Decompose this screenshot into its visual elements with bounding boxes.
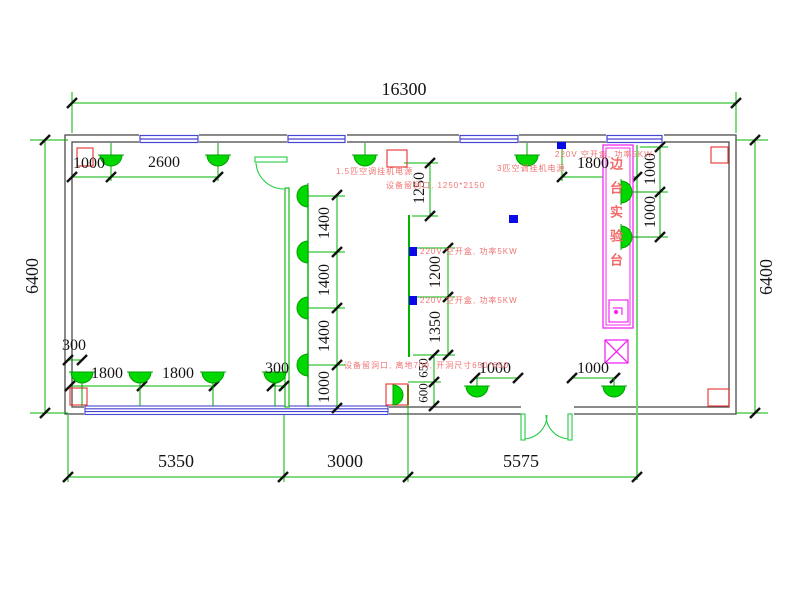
dim-label: 1000 bbox=[73, 156, 105, 172]
lamp-icon bbox=[297, 239, 308, 265]
floorplan-drawing: 16300 6400 6400 1000 2600 1800 1000 1000… bbox=[0, 0, 800, 600]
interior-door-icon bbox=[255, 157, 287, 189]
dim-label: 1400 bbox=[317, 207, 333, 239]
lamp-icon bbox=[127, 372, 153, 406]
lamp-icon bbox=[393, 385, 403, 405]
dim-label: 3000 bbox=[327, 452, 363, 470]
curtain-wall-band-icon bbox=[85, 406, 388, 415]
power-outlet-icon bbox=[557, 142, 566, 149]
lamp-icon bbox=[601, 378, 627, 397]
power-outlet-icon bbox=[509, 215, 518, 223]
annotation-outlet-mid-upper: 220V 空开盒, 功率5KW bbox=[420, 248, 518, 256]
annotation-hole-bottom: 设备留洞口, 离地700, 开洞尺寸650*650 bbox=[344, 362, 509, 370]
dim-label: 5350 bbox=[158, 452, 194, 470]
dim-label: 600 bbox=[417, 383, 430, 403]
annotation-ac-small: 1.5匹空调挂机电源 bbox=[336, 168, 413, 176]
dim-total-width: 16300 bbox=[382, 80, 427, 98]
dim-label: 300 bbox=[62, 338, 86, 354]
dim-label: 2600 bbox=[148, 155, 180, 171]
annotation-outlet-mid-lower: 220V 空开盒, 功率5KW bbox=[420, 297, 518, 305]
double-door-icon bbox=[521, 414, 572, 440]
lamp-icon bbox=[262, 372, 288, 406]
annotation-ac-large: 3匹空调挂机电源 bbox=[497, 165, 565, 173]
interior-lines bbox=[308, 145, 637, 480]
dim-label: 1000 bbox=[577, 361, 609, 377]
lamp-icon bbox=[200, 372, 226, 406]
dim-label: 1800 bbox=[91, 366, 123, 382]
dim-left-height: 6400 bbox=[23, 258, 41, 294]
lamp-icon bbox=[352, 143, 378, 166]
lamp-icon bbox=[297, 183, 308, 209]
dim-label: 1350 bbox=[428, 311, 444, 343]
lamp-icon bbox=[205, 143, 231, 166]
lamp-icon bbox=[514, 143, 540, 166]
dim-label: 300 bbox=[265, 361, 289, 377]
power-outlet-icon bbox=[409, 296, 417, 305]
lamp-icon bbox=[297, 295, 308, 321]
dim-right-height: 6400 bbox=[757, 259, 775, 295]
power-outlet-icon bbox=[409, 247, 417, 256]
annotation-hole-top: 设备留洞口, 1250*2150 bbox=[386, 182, 485, 190]
dim-label: 1200 bbox=[428, 256, 444, 288]
dim-label: 1400 bbox=[317, 320, 333, 352]
dim-label: 1400 bbox=[317, 264, 333, 296]
annotation-outlet-top: 220V 空开盒, 功率5KW bbox=[555, 151, 653, 159]
dim-label: 1000 bbox=[643, 196, 659, 228]
dim-label: 1800 bbox=[162, 366, 194, 382]
dim-label: 5575 bbox=[503, 452, 539, 470]
lamp-icon bbox=[297, 352, 308, 378]
lamp-icon bbox=[464, 378, 490, 397]
dim-label: 1000 bbox=[317, 371, 333, 403]
bench-label: 边台实验台 bbox=[609, 157, 622, 277]
